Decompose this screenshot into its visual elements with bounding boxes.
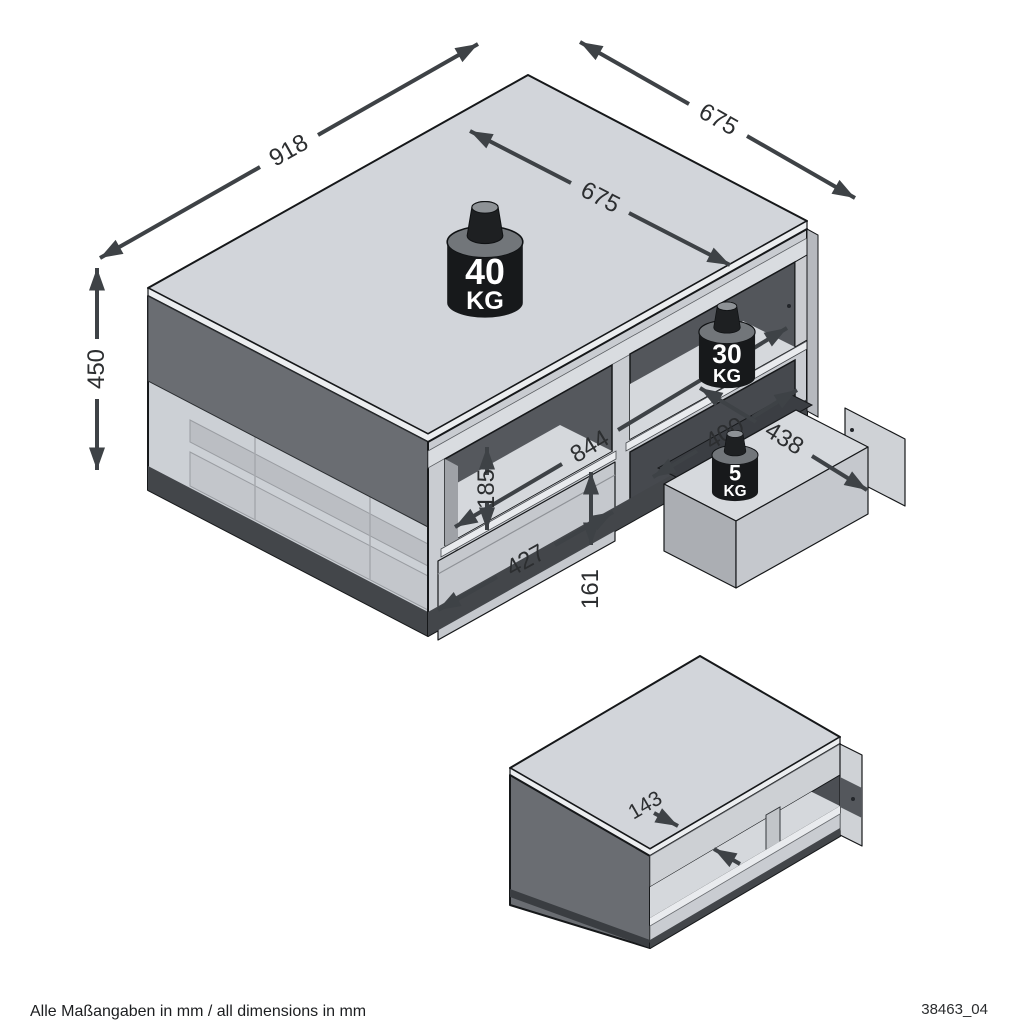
weight-drawer-unit: KG [723,483,746,500]
weight-shelf-unit: KG [713,365,741,386]
dim-niche-height-label: 185 [473,469,500,509]
shelf-pin-hole [851,797,855,801]
dim-line [580,42,689,104]
niche-left-wall [445,459,458,552]
weight-knob-top [472,202,498,214]
dim-height: 450 [83,268,110,470]
footer-article-number: 38463_04 [921,1001,988,1018]
dim-line [747,136,855,198]
niche-right-opening [795,255,807,347]
dim-top-depth-label: 675 [694,98,742,141]
footer-note: Alle Maßangaben in mm / all dimensions i… [30,1003,366,1020]
dim-height-label: 450 [83,349,110,389]
main-table-view: 918 675 675 450 844 185 [83,42,905,640]
dim-drawer-front-height-label: 161 [577,569,604,609]
dimension-diagram-svg: 918 675 675 450 844 185 [0,0,1024,1024]
weight-knob-top [727,430,743,437]
shelf-pin-hole [787,304,791,308]
weight-knob-top [717,302,737,311]
right-edge-strip [807,229,818,417]
drawer-handle-hole [850,428,854,432]
weight-tabletop-value: 40 [465,252,505,292]
secondary-table-view: 143 [510,656,862,948]
weight-drawer-value: 5 [729,461,741,486]
dim-top-width-label: 918 [265,129,313,172]
weight-tabletop-unit: KG [466,287,504,315]
diagram-page: 918 675 675 450 844 185 [0,0,1024,1024]
